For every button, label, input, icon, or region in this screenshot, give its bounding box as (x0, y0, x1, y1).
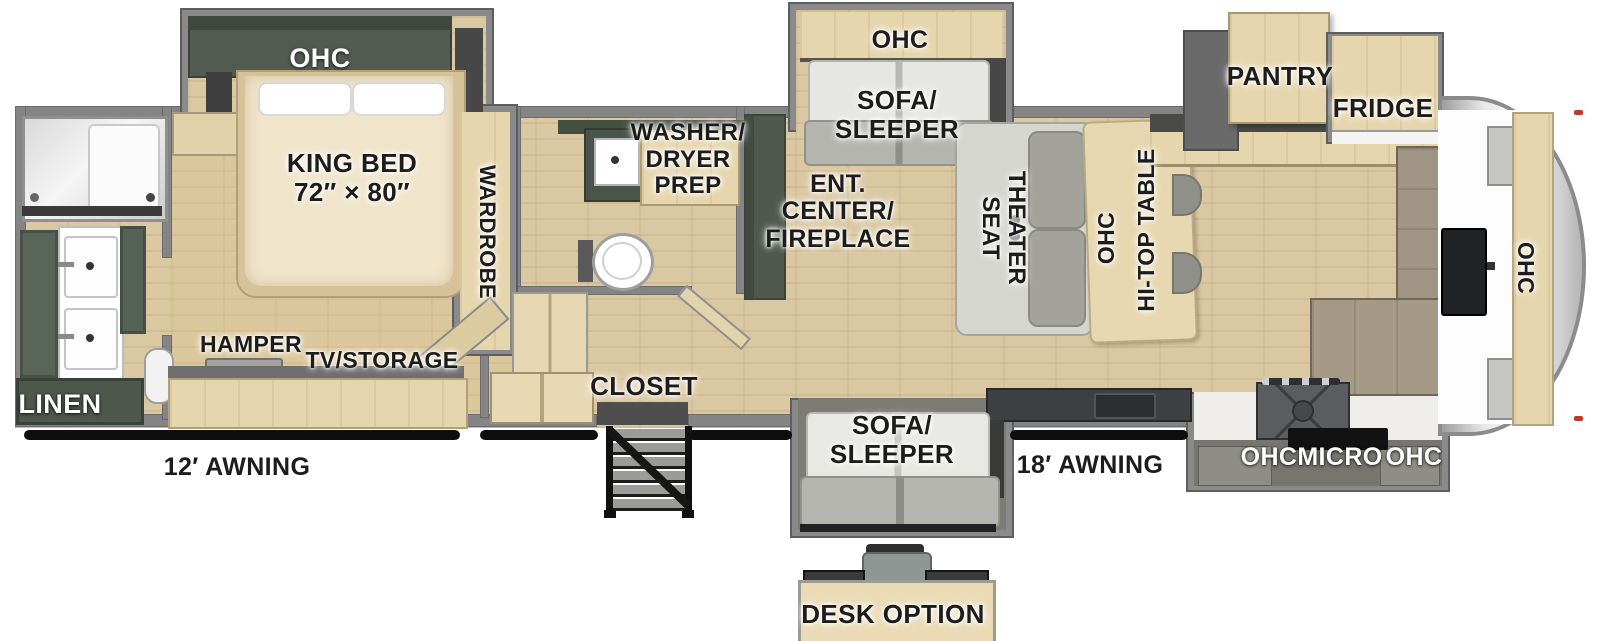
sofa-top-line1: SOFA/ (857, 86, 937, 115)
tv-storage-console (168, 378, 468, 429)
king-bed-line2: 72″ × 80″ (294, 178, 410, 207)
marker-light-top (1574, 110, 1583, 115)
sofa-bottom-base (800, 524, 996, 532)
theater-line1: THEATER (1003, 171, 1029, 285)
awning-rod-12ft (24, 430, 460, 440)
fridge-label: FRIDGE (1323, 94, 1443, 122)
sofa-top-line2: SLEEPER (835, 115, 959, 144)
marker-light-bottom (1574, 416, 1583, 421)
awning-rod-18ft-a (480, 430, 598, 440)
shower-drain (146, 193, 155, 202)
sofa-bottom-line2: SLEEPER (830, 440, 954, 469)
stove-knob-strip (1262, 378, 1340, 385)
hitop-table-label: HI-TOP TABLE (1133, 135, 1159, 325)
sink-1-faucet (58, 262, 74, 267)
shower-ledge (22, 206, 162, 216)
washer-dryer-prep-label: WASHER/ DRYER PREP (603, 118, 773, 202)
sofa-top-label: SOFA/ SLEEPER (817, 86, 977, 144)
shower-handle (30, 193, 39, 202)
vanity-cabinet-right (120, 226, 146, 334)
washer-line1: WASHER/ (631, 120, 746, 146)
vanity-cabinet-left (20, 230, 58, 378)
washer-line2: DRYER (645, 147, 730, 173)
theater-line2: SEAT (977, 196, 1003, 260)
dinette-ohc-label: OHC (1093, 203, 1119, 273)
ent-line3: FIREPLACE (765, 226, 910, 254)
sofa-top-ohc-label: OHC (855, 26, 945, 54)
pillow-left (258, 82, 352, 116)
ent-line1: ENT. (810, 171, 866, 199)
king-bed-line1: KING BED (287, 149, 417, 178)
theater-seat-back-2 (1028, 229, 1086, 327)
wall-bottom-mid (688, 414, 792, 427)
kitchen-ohc-right-label: OHC (1374, 443, 1454, 471)
sofa-bottom-label: SOFA/ SLEEPER (812, 411, 972, 469)
stove-center-burner (1292, 400, 1314, 422)
front-ohc-label: OHC (1513, 233, 1539, 303)
theater-seat-back-1 (1028, 131, 1086, 229)
sofa-bottom-seat (800, 476, 1000, 528)
closet-label: CLOSET (579, 373, 709, 399)
pantry-label: PANTRY (1215, 62, 1345, 90)
king-bed-label: KING BED 72″ × 80″ (232, 148, 472, 208)
ent-center-label: ENT. CENTER/ FIREPLACE (758, 170, 918, 254)
toilet-tank (578, 240, 593, 282)
stairs-rail-left (606, 426, 613, 512)
nightstand (172, 112, 240, 156)
entry-stairs (606, 426, 692, 518)
desk-option-label: DESK OPTION (783, 600, 1003, 628)
entry-threshold (597, 402, 688, 425)
fridge-doors (1332, 130, 1438, 144)
awning-12-label: 12′ AWNING (137, 453, 337, 481)
tv-storage-label: TV/STORAGE (297, 347, 467, 373)
awning-rod-18ft-c (1010, 430, 1188, 440)
sofa-bottom-line1: SOFA/ (852, 411, 932, 440)
sink-2-faucet (58, 334, 74, 339)
awning-rod-18ft-b (688, 430, 792, 440)
washer-line3: PREP (655, 173, 722, 199)
front-tv (1441, 228, 1487, 316)
awning-18-label: 18′ AWNING (990, 451, 1190, 479)
stairs-foot-left (604, 510, 616, 518)
island-sink (1094, 393, 1156, 419)
bed-slide-cabinet (206, 72, 232, 114)
ent-line2: CENTER/ (782, 198, 895, 226)
island-counter (986, 388, 1192, 422)
sink-1-drain (86, 262, 94, 270)
hamper-label: HAMPER (191, 331, 311, 357)
toilet-bowl-inner (602, 242, 642, 280)
pillow-right (352, 82, 446, 116)
bedroom-ohc-label: OHC (260, 43, 380, 73)
stairs-foot-right (682, 510, 694, 518)
rv-floorplan-canvas: OHC KING BED 72″ × 80″ WARDROBE WASHER/ … (0, 0, 1600, 641)
wardrobe-label: WARDROBE (474, 152, 500, 312)
closet-cabinet (512, 292, 588, 376)
sink-2-drain (86, 334, 94, 342)
linen-label: LINEN (10, 390, 110, 418)
theater-seat-label: THEATER SEAT (976, 153, 1030, 303)
stair-tread (613, 499, 685, 511)
